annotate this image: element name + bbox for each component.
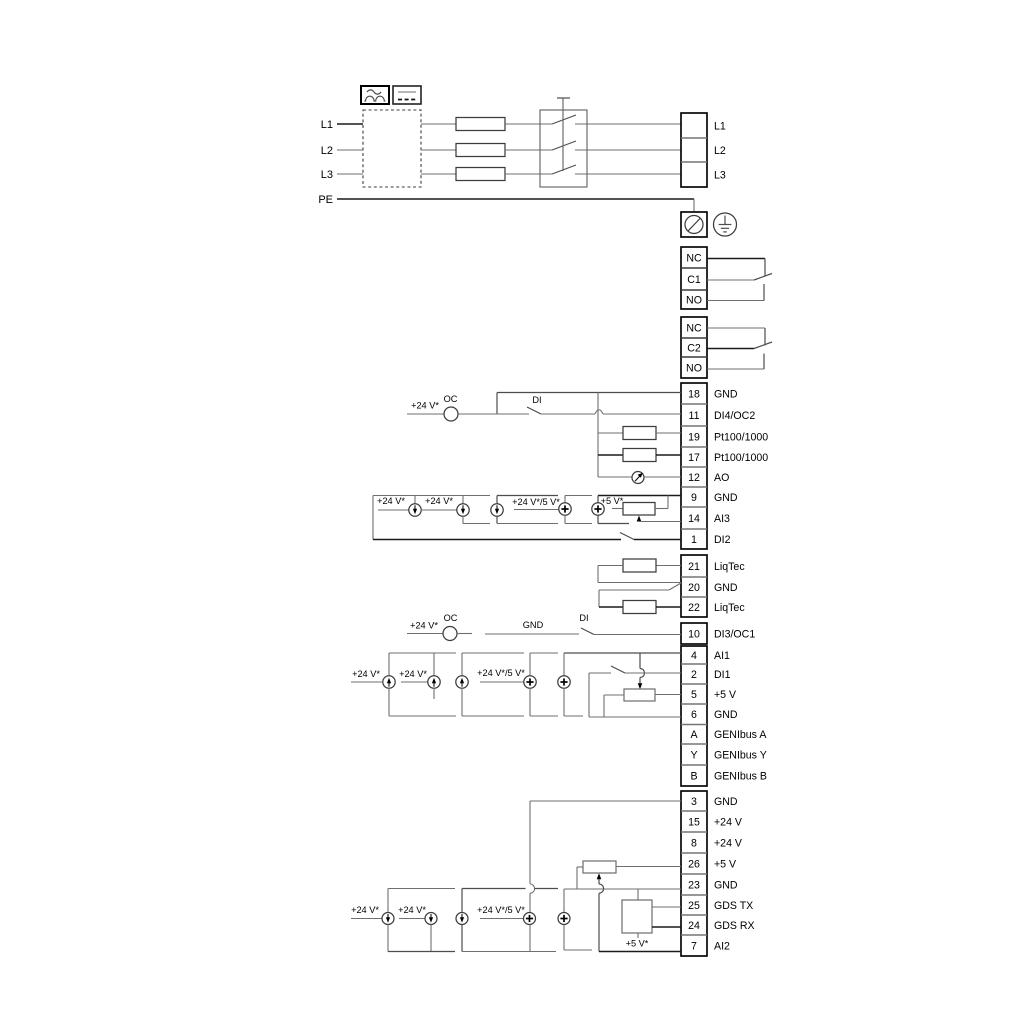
svg-text:NC: NC [686, 322, 702, 334]
svg-text:6: 6 [691, 709, 697, 721]
svg-text:L2: L2 [321, 145, 333, 157]
svg-text:+24 V*: +24 V* [351, 905, 379, 915]
svg-text:A: A [690, 729, 698, 741]
svg-text:+24 V*: +24 V* [398, 905, 426, 915]
svg-text:B: B [690, 770, 697, 782]
svg-text:L1: L1 [321, 119, 333, 131]
svg-text:23: 23 [688, 879, 700, 891]
svg-text:4: 4 [691, 650, 697, 662]
svg-text:GDS TX: GDS TX [714, 900, 753, 912]
svg-text:AI1: AI1 [714, 650, 730, 662]
svg-text:GND: GND [714, 709, 738, 721]
svg-text:9: 9 [691, 492, 697, 504]
svg-text:GENIbus B: GENIbus B [714, 770, 767, 782]
svg-text:+24 V*/5 V*: +24 V*/5 V* [477, 905, 525, 915]
svg-text:+24 V: +24 V [714, 837, 743, 849]
svg-text:L3: L3 [321, 169, 333, 181]
svg-text:Pt100/1000: Pt100/1000 [714, 431, 768, 443]
svg-text:OC: OC [444, 613, 458, 623]
svg-text:C1: C1 [687, 274, 701, 286]
svg-text:L2: L2 [714, 145, 726, 157]
svg-text:3: 3 [691, 796, 697, 808]
svg-text:NC: NC [686, 252, 702, 264]
svg-text:+5 V*: +5 V* [601, 496, 624, 506]
svg-text:NO: NO [686, 294, 702, 306]
svg-text:L3: L3 [714, 169, 726, 181]
svg-text:+24 V*: +24 V* [425, 496, 453, 506]
svg-text:+24 V*: +24 V* [352, 669, 380, 679]
svg-text:11: 11 [689, 410, 700, 422]
svg-text:LiqTec: LiqTec [714, 602, 745, 614]
svg-text:12: 12 [688, 472, 700, 484]
svg-text:PE: PE [318, 194, 333, 206]
svg-text:26: 26 [688, 858, 700, 870]
svg-text:AI2: AI2 [714, 940, 730, 952]
svg-text:+5 V: +5 V [714, 858, 737, 870]
svg-text:24: 24 [688, 920, 700, 932]
svg-text:GENIbus A: GENIbus A [714, 729, 767, 741]
svg-text:18: 18 [688, 388, 700, 400]
svg-text:GND: GND [714, 388, 738, 400]
svg-text:DI1: DI1 [714, 669, 731, 681]
svg-text:14: 14 [688, 513, 700, 525]
svg-text:DI3/OC1: DI3/OC1 [714, 628, 755, 640]
svg-text:25: 25 [688, 900, 700, 912]
svg-text:21: 21 [688, 561, 700, 573]
svg-text:GND: GND [714, 582, 738, 594]
svg-text:+24 V*/5 V*: +24 V*/5 V* [477, 668, 525, 678]
svg-text:Pt100/1000: Pt100/1000 [714, 452, 768, 464]
svg-text:DI: DI [532, 395, 541, 405]
svg-text:15: 15 [688, 816, 700, 828]
svg-text:22: 22 [688, 602, 700, 614]
svg-text:+24 V*: +24 V* [410, 621, 438, 631]
svg-text:GND: GND [523, 620, 544, 630]
svg-text:19: 19 [688, 431, 700, 443]
svg-text:7: 7 [691, 940, 697, 952]
svg-text:NO: NO [686, 362, 702, 374]
svg-text:Y: Y [690, 749, 697, 761]
svg-text:L1: L1 [714, 120, 726, 132]
svg-text:17: 17 [688, 452, 700, 464]
svg-text:1: 1 [691, 534, 697, 546]
svg-text:20: 20 [688, 582, 700, 594]
svg-text:+24 V*/5 V*: +24 V*/5 V* [512, 497, 560, 507]
svg-text:AI3: AI3 [714, 513, 730, 525]
svg-text:8: 8 [691, 837, 697, 849]
svg-text:DI4/OC2: DI4/OC2 [714, 410, 755, 422]
svg-text:LiqTec: LiqTec [714, 561, 745, 573]
svg-text:10: 10 [688, 628, 700, 640]
svg-text:2: 2 [691, 669, 697, 681]
svg-text:+5 V*: +5 V* [626, 939, 649, 949]
svg-text:C2: C2 [687, 342, 701, 354]
svg-text:5: 5 [691, 689, 697, 701]
svg-text:+5 V: +5 V [714, 689, 737, 701]
svg-text:AO: AO [714, 472, 729, 484]
svg-text:GENIbus Y: GENIbus Y [714, 749, 767, 761]
svg-text:GND: GND [714, 492, 738, 504]
svg-text:OC: OC [444, 394, 458, 404]
svg-text:+24 V*: +24 V* [399, 669, 427, 679]
svg-text:GND: GND [714, 879, 738, 891]
svg-text:GND: GND [714, 796, 738, 808]
svg-text:DI: DI [579, 613, 588, 623]
svg-text:GDS RX: GDS RX [714, 920, 755, 932]
svg-text:+24 V*: +24 V* [411, 401, 439, 411]
svg-text:+24 V: +24 V [714, 816, 743, 828]
svg-text:+24 V*: +24 V* [377, 496, 405, 506]
svg-text:DI2: DI2 [714, 534, 731, 546]
